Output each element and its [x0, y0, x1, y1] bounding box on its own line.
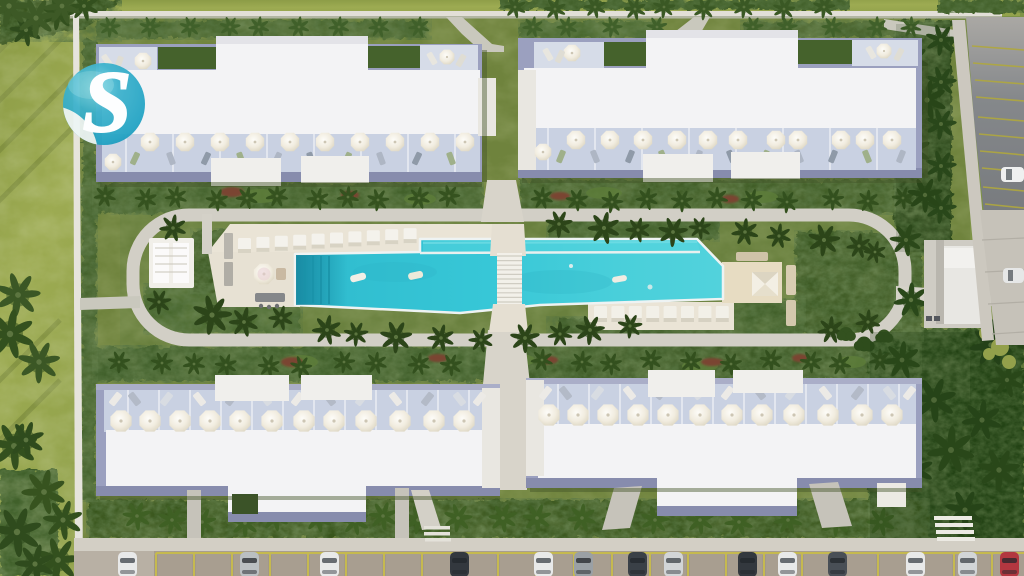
svg-text:S: S	[83, 54, 132, 151]
